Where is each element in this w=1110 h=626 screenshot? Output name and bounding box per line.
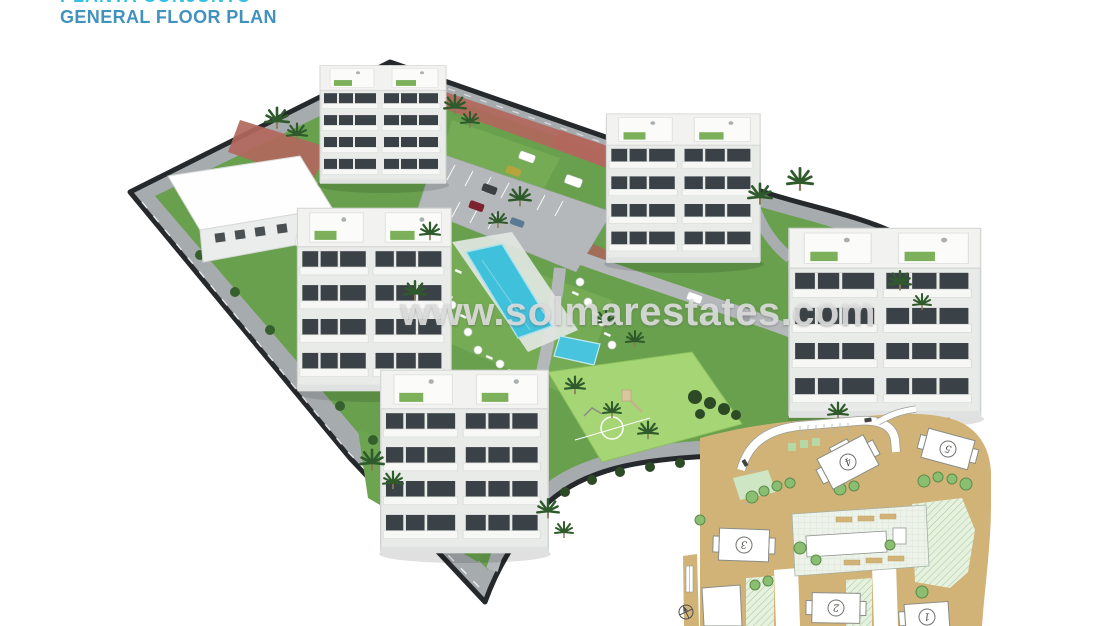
building-west xyxy=(297,208,451,391)
building-south xyxy=(381,370,549,553)
plan-pool-block xyxy=(792,505,929,576)
building-east xyxy=(789,228,981,418)
plan-pool xyxy=(806,531,887,557)
plan-building-3: 3 xyxy=(712,528,775,562)
plan-building-2-number: 2 xyxy=(833,601,841,612)
play-tower xyxy=(622,390,631,401)
real-estate-floor-plan-image: PLANTA CONJUNTO GENERAL FLOOR PLAN xyxy=(0,0,1110,626)
building-northeast xyxy=(606,114,760,263)
aerial-render: 4 5 3 xyxy=(0,0,1110,626)
plan-building-2: 2 xyxy=(806,592,867,623)
plan-left-strip xyxy=(683,554,699,626)
plan-building-1-number: 1 xyxy=(923,610,930,621)
plan-building-1: 1 xyxy=(898,601,950,626)
site-plan: 4 5 3 xyxy=(677,409,991,626)
building-north xyxy=(320,65,446,183)
plan-building-partial xyxy=(702,585,742,626)
plan-building-3-number: 3 xyxy=(741,538,748,549)
